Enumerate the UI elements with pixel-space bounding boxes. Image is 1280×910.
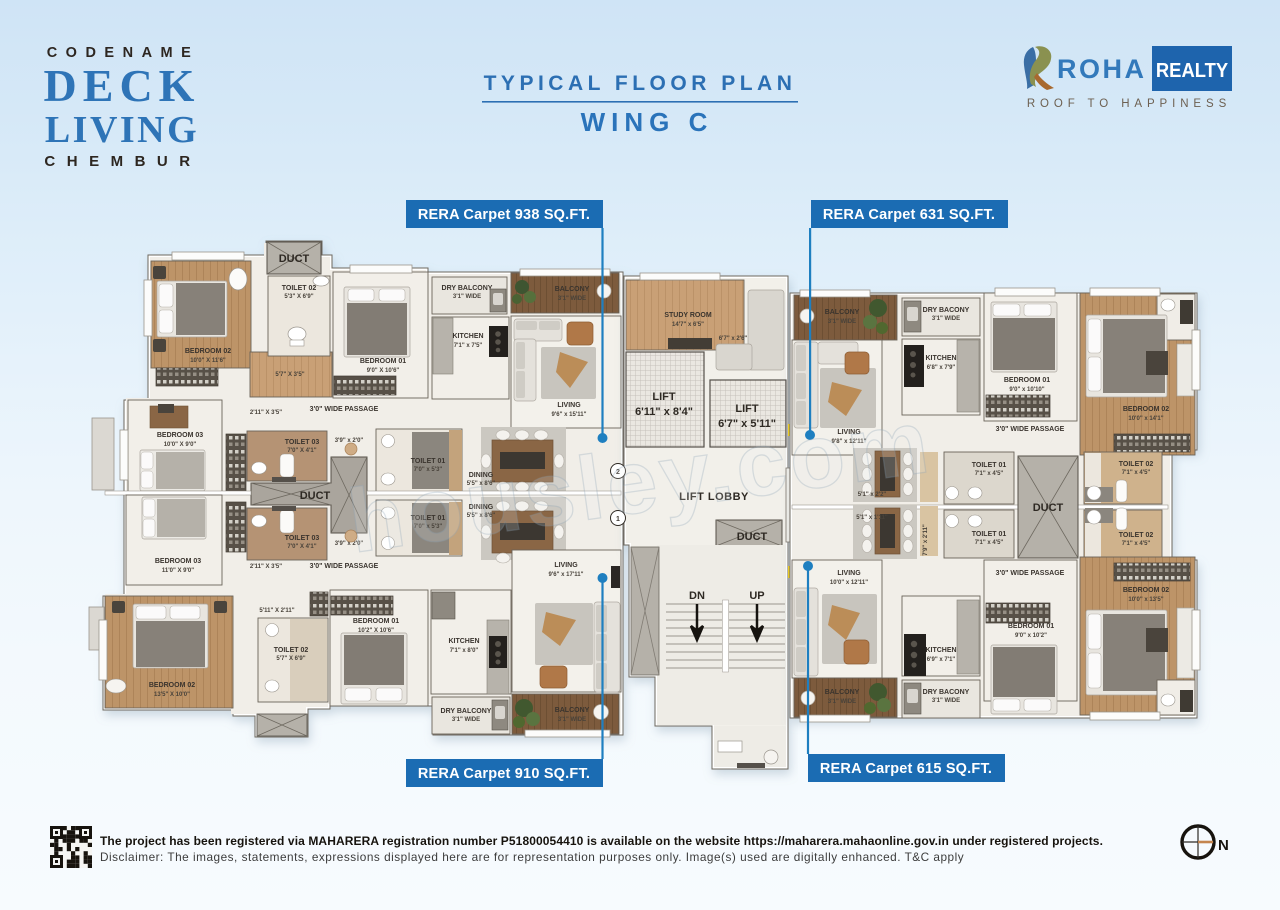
svg-text:TOILET 03: TOILET 03 [285, 535, 320, 542]
svg-text:7'9" x 2'11": 7'9" x 2'11" [923, 524, 929, 556]
svg-text:DRY BALCONY: DRY BALCONY [442, 285, 493, 292]
svg-text:BEDROOM 02: BEDROOM 02 [185, 348, 231, 355]
svg-text:5'7" X 3'5": 5'7" X 3'5" [275, 372, 304, 378]
svg-text:KITCHEN: KITCHEN [925, 355, 956, 362]
svg-text:TOILET 02: TOILET 02 [282, 285, 317, 292]
svg-text:RERA Carpet 910 SQ.FT.: RERA Carpet 910 SQ.FT. [418, 766, 590, 782]
svg-text:BEDROOM 02: BEDROOM 02 [149, 682, 195, 689]
svg-text:3'1" WIDE: 3'1" WIDE [932, 316, 960, 322]
svg-text:DUCT: DUCT [279, 253, 310, 265]
svg-text:KITCHEN: KITCHEN [925, 647, 956, 654]
svg-text:7'1" x 4'5": 7'1" x 4'5" [1122, 470, 1151, 476]
svg-text:LIFT: LIFT [652, 391, 675, 403]
svg-text:DUCT: DUCT [1033, 502, 1064, 514]
svg-text:BEDROOM 01: BEDROOM 01 [1004, 377, 1050, 384]
svg-text:TOILET 02: TOILET 02 [274, 647, 309, 654]
svg-text:3'1" WIDE: 3'1" WIDE [453, 294, 481, 300]
svg-text:TOILET 03: TOILET 03 [285, 439, 320, 446]
svg-text:10'0" x 12'11": 10'0" x 12'11" [830, 580, 868, 586]
svg-text:7'1" x 4'5": 7'1" x 4'5" [1122, 541, 1151, 547]
svg-text:RERA Carpet 631 SQ.FT.: RERA Carpet 631 SQ.FT. [823, 207, 995, 223]
svg-text:9'0" X 10'6": 9'0" X 10'6" [367, 368, 400, 374]
svg-text:BALCONY: BALCONY [825, 309, 860, 316]
svg-text:3'1" WIDE: 3'1" WIDE [452, 717, 480, 723]
svg-text:DUCT: DUCT [737, 531, 768, 543]
svg-text:BALCONY: BALCONY [825, 689, 860, 696]
svg-text:9'0" x 10'2": 9'0" x 10'2" [1015, 633, 1047, 639]
svg-text:Disclaimer: The images, statem: Disclaimer: The images, statements, expr… [100, 850, 964, 864]
svg-text:TOILET 01: TOILET 01 [972, 462, 1007, 469]
svg-text:3'1" WIDE: 3'1" WIDE [558, 717, 586, 723]
svg-text:TOILET 02: TOILET 02 [1119, 461, 1154, 468]
svg-text:6'8" x 7'9": 6'8" x 7'9" [927, 365, 956, 371]
svg-text:TYPICAL FLOOR PLAN: TYPICAL FLOOR PLAN [484, 72, 797, 95]
svg-text:6'7" x 2'6": 6'7" x 2'6" [719, 336, 748, 342]
svg-text:3'1" WIDE: 3'1" WIDE [932, 698, 960, 704]
svg-text:LIVING: LIVING [554, 562, 578, 569]
svg-text:3'0" WIDE PASSAGE: 3'0" WIDE PASSAGE [310, 406, 379, 413]
svg-text:5'3" X 6'9": 5'3" X 6'9" [284, 294, 313, 300]
svg-text:11'0" X 9'0": 11'0" X 9'0" [162, 568, 194, 574]
svg-text:7'0" X 4'1": 7'0" X 4'1" [287, 448, 316, 454]
svg-text:7'1" x 8'0": 7'1" x 8'0" [450, 648, 479, 654]
svg-text:DRY BALCONY: DRY BALCONY [441, 708, 492, 715]
svg-text:RERA Carpet 938 SQ.FT.: RERA Carpet 938 SQ.FT. [418, 207, 590, 223]
svg-text:14'7" x 6'5": 14'7" x 6'5" [672, 322, 704, 328]
svg-text:3'1" WIDE: 3'1" WIDE [828, 319, 856, 325]
svg-text:LIVING: LIVING [45, 109, 199, 151]
svg-text:10'0" x 14'1": 10'0" x 14'1" [1128, 416, 1163, 422]
svg-text:2'11" X 3'5": 2'11" X 3'5" [250, 410, 282, 416]
svg-text:9'6" x 15'11": 9'6" x 15'11" [552, 412, 587, 418]
svg-text:BALCONY: BALCONY [555, 707, 590, 714]
svg-text:LIVING: LIVING [557, 402, 581, 409]
svg-text:STUDY ROOM: STUDY ROOM [664, 312, 711, 319]
svg-text:10'0" X 11'6": 10'0" X 11'6" [190, 358, 226, 364]
svg-text:3'0" WIDE PASSAGE: 3'0" WIDE PASSAGE [996, 570, 1065, 577]
svg-text:TOILET 01: TOILET 01 [972, 531, 1007, 538]
svg-text:5'11" X 2'11": 5'11" X 2'11" [259, 608, 294, 614]
svg-text:10'2" X 10'6": 10'2" X 10'6" [358, 628, 394, 634]
svg-text:DECK: DECK [44, 60, 201, 111]
svg-text:BEDROOM 03: BEDROOM 03 [157, 432, 203, 439]
svg-text:3'0" WIDE PASSAGE: 3'0" WIDE PASSAGE [996, 426, 1065, 433]
svg-text:5'7" X 6'9": 5'7" X 6'9" [276, 656, 305, 662]
svg-text:DRY BACONY: DRY BACONY [923, 307, 970, 314]
svg-text:3'1" WIDE: 3'1" WIDE [828, 699, 856, 705]
svg-text:9'0" x 10'10": 9'0" x 10'10" [1009, 387, 1044, 393]
svg-text:7'1" x 7'5": 7'1" x 7'5" [454, 343, 483, 349]
svg-text:The project has been registere: The project has been registered via MAHA… [100, 834, 1103, 848]
svg-text:BEDROOM 01: BEDROOM 01 [1008, 623, 1054, 630]
svg-text:WING C: WING C [581, 107, 714, 137]
svg-text:REALTY: REALTY [1156, 60, 1228, 82]
svg-text:7'1" x 4'5": 7'1" x 4'5" [975, 471, 1004, 477]
svg-text:BEDROOM 01: BEDROOM 01 [360, 358, 406, 365]
svg-text:N: N [1218, 837, 1229, 854]
svg-text:10'0" X 9'0": 10'0" X 9'0" [164, 442, 197, 448]
svg-text:ROOF TO HAPPINESS: ROOF TO HAPPINESS [1027, 98, 1231, 110]
svg-text:BALCONY: BALCONY [555, 286, 590, 293]
svg-text:RERA Carpet 615 SQ.FT.: RERA Carpet 615 SQ.FT. [820, 761, 992, 777]
svg-text:KITCHEN: KITCHEN [452, 333, 483, 340]
svg-text:9'6" x 17'11": 9'6" x 17'11" [549, 572, 584, 578]
svg-text:BEDROOM 02: BEDROOM 02 [1123, 406, 1169, 413]
svg-text:3'1" WIDE: 3'1" WIDE [558, 296, 586, 302]
svg-text:5'1" x 1'11": 5'1" x 1'11" [856, 515, 888, 521]
svg-text:6'11" x 8'4": 6'11" x 8'4" [635, 406, 693, 418]
svg-text:13'5" X 10'0": 13'5" X 10'0" [154, 692, 190, 698]
svg-text:ROHA: ROHA [1057, 54, 1147, 84]
svg-text:DUCT: DUCT [300, 490, 331, 502]
svg-text:6'9" x 7'1": 6'9" x 7'1" [927, 657, 956, 663]
svg-text:LIVING: LIVING [837, 570, 861, 577]
svg-text:7'0" X 4'1": 7'0" X 4'1" [287, 544, 316, 550]
svg-text:KITCHEN: KITCHEN [448, 638, 479, 645]
svg-text:CODENAME: CODENAME [47, 45, 200, 61]
svg-text:CHEMBUR: CHEMBUR [44, 153, 201, 170]
svg-text:10'0" x 13'5": 10'0" x 13'5" [1128, 597, 1163, 603]
svg-text:BEDROOM 01: BEDROOM 01 [353, 618, 399, 625]
svg-text:LIFT: LIFT [735, 403, 758, 415]
svg-text:BEDROOM 03: BEDROOM 03 [155, 558, 201, 565]
svg-text:UP: UP [749, 590, 764, 602]
svg-text:2'11" X 3'5": 2'11" X 3'5" [250, 564, 282, 570]
svg-text:TOILET 02: TOILET 02 [1119, 532, 1154, 539]
svg-text:BEDROOM 02: BEDROOM 02 [1123, 587, 1169, 594]
svg-text:DN: DN [689, 590, 705, 602]
svg-text:7'1" x 4'5": 7'1" x 4'5" [975, 540, 1004, 546]
svg-text:DRY BACONY: DRY BACONY [923, 689, 970, 696]
